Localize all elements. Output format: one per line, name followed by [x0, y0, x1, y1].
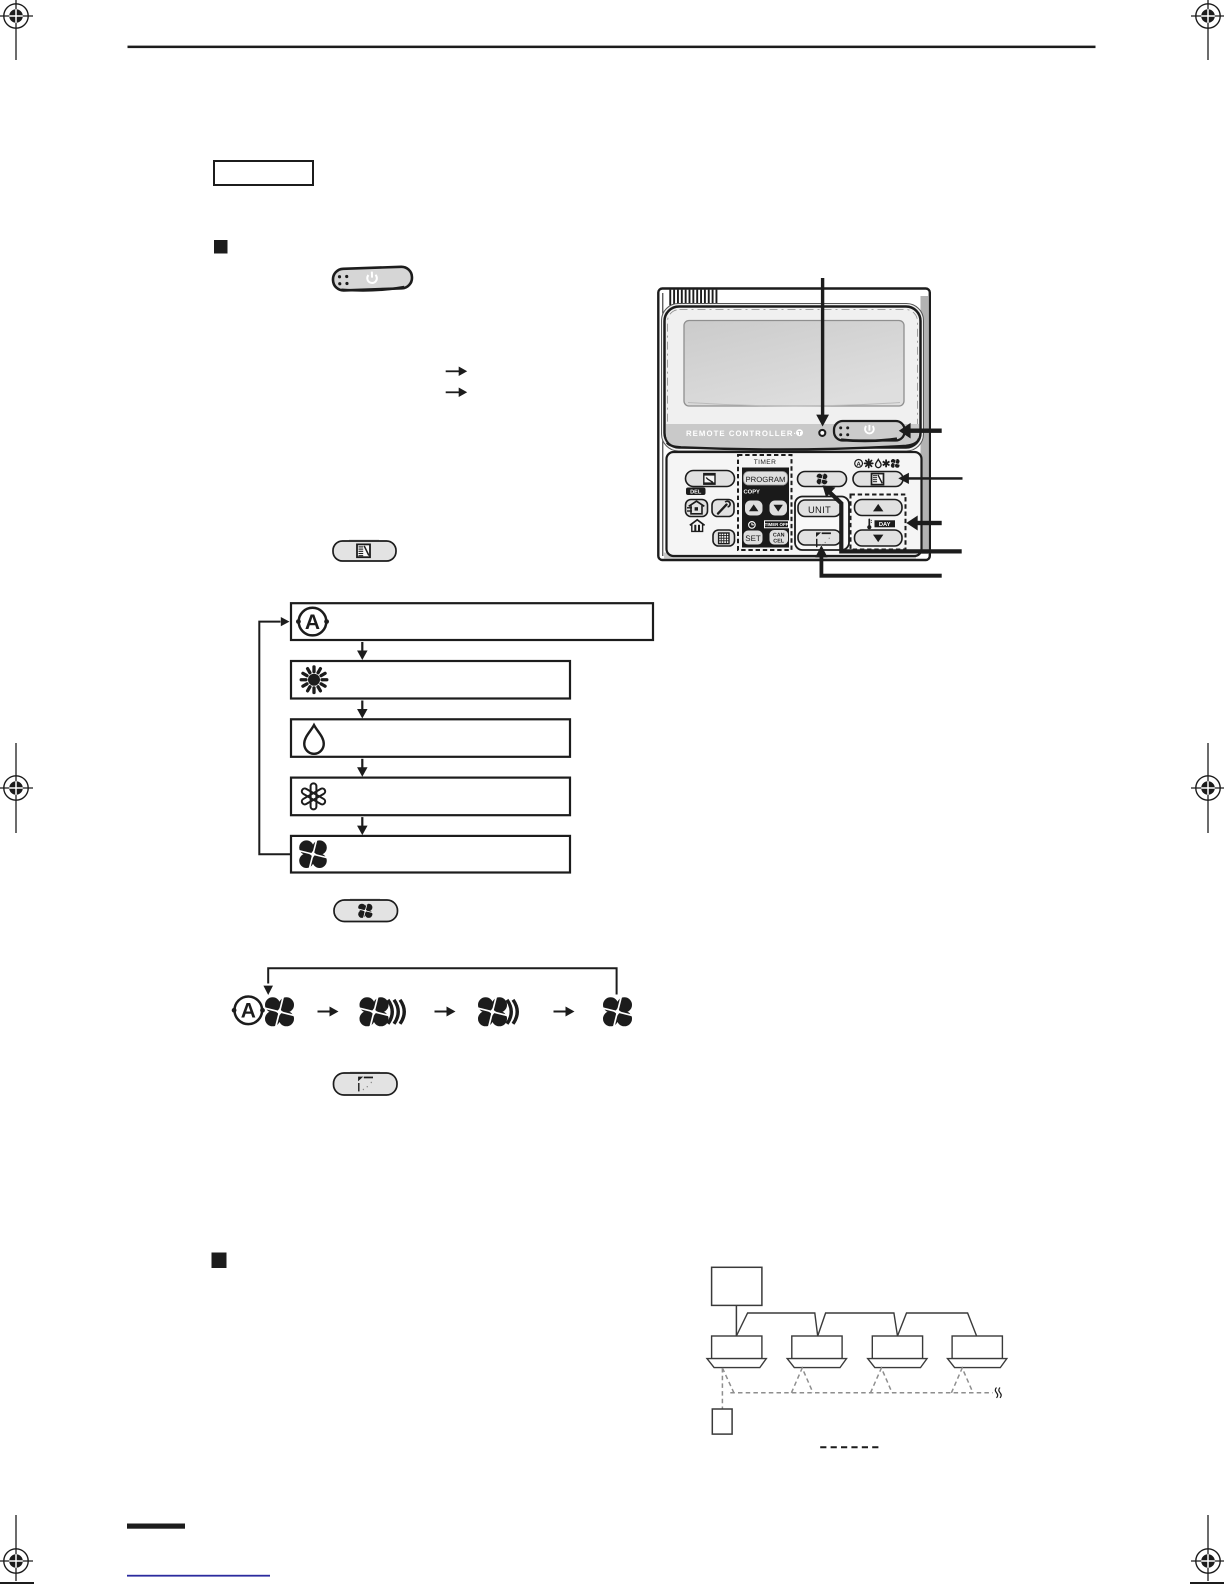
- svg-text:SET: SET: [745, 534, 761, 543]
- svg-text:A: A: [856, 461, 861, 468]
- svg-text:CEL: CEL: [773, 538, 784, 544]
- svg-text:TIMER OFF: TIMER OFF: [765, 522, 789, 527]
- svg-text:DEL: DEL: [690, 490, 702, 496]
- svg-text:UNIT: UNIT: [808, 504, 831, 515]
- svg-text:PROGRAM: PROGRAM: [746, 475, 786, 484]
- svg-text:T: T: [798, 431, 802, 437]
- svg-text:A: A: [305, 611, 320, 634]
- svg-text:TIMER: TIMER: [754, 459, 777, 466]
- svg-text:A: A: [241, 1000, 256, 1023]
- svg-text:DAY: DAY: [879, 522, 891, 528]
- svg-text:COPY: COPY: [744, 488, 761, 495]
- svg-text:REMOTE CONTROLLER·: REMOTE CONTROLLER·: [686, 429, 797, 438]
